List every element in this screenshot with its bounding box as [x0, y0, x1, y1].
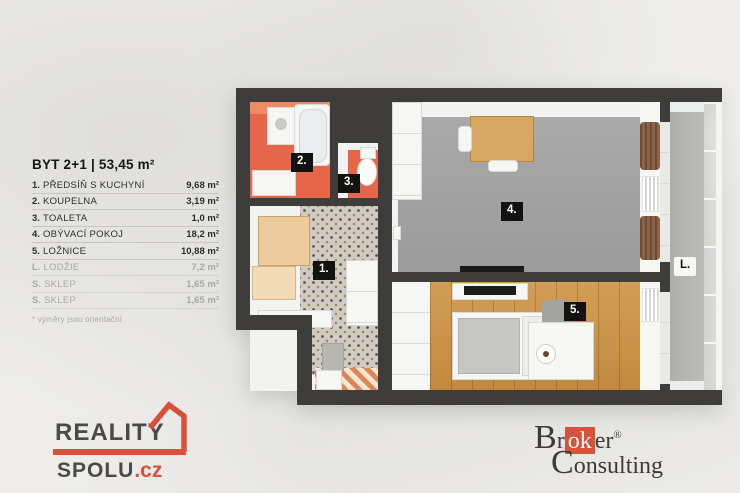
wall-left [236, 88, 250, 329]
logo-tld-cz: .cz [134, 459, 162, 482]
room-label-2: 2. [291, 153, 313, 172]
logo-word-spolu: SPOLU [57, 459, 134, 482]
washing-machine-door [275, 118, 287, 130]
loggia-outer-frame [716, 102, 722, 391]
consulting-rest: onsulting [574, 453, 663, 479]
loggia-window-frame [660, 122, 670, 262]
dining-table [470, 116, 534, 162]
curtain [640, 216, 660, 260]
room-area: 10,88 m² [181, 246, 219, 257]
kitchen-lower-cabinet [252, 266, 296, 300]
radiator [642, 176, 659, 212]
room-area: 1,0 m² [192, 213, 219, 224]
bed-mattress [458, 318, 520, 374]
floorplan: 1. 2. 3. 4. 5. L. [236, 88, 722, 405]
wall-bath-hall [250, 198, 378, 206]
room-number: S. [32, 295, 41, 306]
legend-row: 1. PŘEDSÍŇ S KUCHYNÍ 9,68 m² [32, 177, 219, 194]
legend-footnote: * výměry jsou orientační [32, 315, 219, 324]
room-area: 1,65 m² [186, 279, 219, 290]
consulting-line: Consulting [551, 446, 663, 480]
loggia-wall-face-top [670, 102, 704, 112]
bathroom-cabinet [252, 170, 296, 196]
legend-row-muted: L. LODŽIE 7,2 m² [32, 260, 219, 277]
room-name: SKLEP [44, 295, 76, 306]
room-label-loggia: L. [674, 257, 696, 276]
loggia-floor [670, 102, 704, 391]
legend-row: 5. LOŽNICE 10,88 m² [32, 243, 219, 260]
room-number: 5. [32, 246, 40, 257]
tv [464, 286, 516, 295]
registered-mark: ® [613, 429, 621, 441]
room-number: L. [32, 262, 40, 273]
room-name: KOUPELNA [43, 196, 97, 207]
legend-row-muted: S. SKLEP 1,65 m² [32, 293, 219, 310]
house-roof-icon [147, 398, 191, 454]
broker-consulting-logo: Broker® Consulting [534, 421, 663, 480]
consulting-cap-c: C [551, 444, 574, 481]
room-name: OBÝVACÍ POKOJ [43, 229, 123, 240]
toilet-bowl [357, 158, 377, 186]
room-name: SKLEP [44, 279, 76, 290]
room-number: 4. [32, 229, 40, 240]
living-wardrobe-column [392, 102, 422, 200]
trash-bin-dot [543, 351, 549, 357]
dining-chair [488, 160, 518, 172]
room-area: 3,19 m² [186, 196, 219, 207]
bedroom-wardrobe [392, 282, 430, 391]
wall-living-bedroom [392, 272, 660, 282]
room-number: 1. [32, 180, 40, 191]
wall-hall-living [378, 102, 392, 391]
wall-above-toilet [330, 102, 392, 143]
logo-underline-bar [53, 449, 186, 455]
room-name: PŘEDSÍŇ S KUCHYNÍ [43, 180, 145, 191]
room-number: S. [32, 279, 41, 290]
legend-row: 2. KOUPELNA 3,19 m² [32, 194, 219, 211]
wall-bath-toilet [330, 102, 338, 198]
storage-box [322, 343, 344, 371]
room-area: 1,65 m² [186, 295, 219, 306]
room-label-3: 3. [338, 174, 360, 193]
room-area: 7,2 m² [192, 262, 219, 273]
radiator [642, 288, 659, 322]
room-name: LOŽNICE [43, 246, 86, 257]
wall-thermostat [393, 226, 401, 240]
dining-chair [458, 126, 472, 152]
loggia-glazing [704, 102, 716, 391]
hall-tall-cabinet [346, 260, 378, 326]
room-number: 3. [32, 213, 40, 224]
room-area: 9,68 m² [186, 180, 219, 191]
loggia-window-frame [660, 292, 670, 384]
room-name: TOALETA [43, 213, 88, 224]
room-number: 2. [32, 196, 40, 207]
legend-row: 4. OBÝVACÍ POKOJ 18,2 m² [32, 227, 219, 244]
kitchen-upper-cabinet [258, 216, 310, 266]
room-name: LODŽIE [43, 262, 79, 273]
entry-side-table [316, 370, 342, 390]
legend-row-muted: S. SKLEP 1,65 m² [32, 276, 219, 293]
flat-title: BYT 2+1 | 53,45 m² [32, 157, 219, 172]
curtain [640, 122, 660, 170]
page-background: BYT 2+1 | 53,45 m² 1. PŘEDSÍŇ S KUCHYNÍ … [0, 0, 740, 493]
wall-top [236, 88, 722, 102]
room-label-5: 5. [564, 302, 586, 321]
room-label-1: 1. [313, 261, 335, 280]
legend-panel: BYT 2+1 | 53,45 m² 1. PŘEDSÍŇ S KUCHYNÍ … [32, 157, 219, 324]
room-area: 18,2 m² [186, 229, 219, 240]
reality-spolu-logo: REALITY SPOLU.cz [53, 400, 193, 482]
legend-row: 3. TOALETA 1,0 m² [32, 210, 219, 227]
room-label-4: 4. [501, 202, 523, 221]
wall-bottom [297, 390, 722, 405]
